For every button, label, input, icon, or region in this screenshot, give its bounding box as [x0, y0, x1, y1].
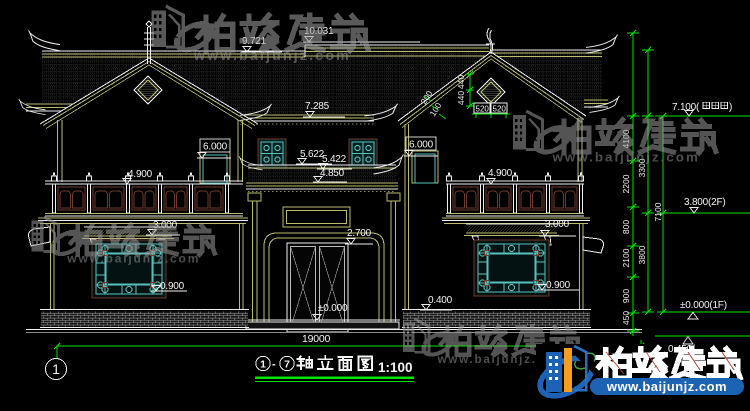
svg-text:www.baijunjz.com: www.baijunjz.com	[606, 379, 727, 394]
svg-text:1: 1	[260, 359, 266, 371]
svg-text:4.850: 4.850	[320, 168, 345, 179]
svg-text:1: 1	[52, 361, 60, 377]
svg-text:±0.000: ±0.000	[318, 303, 348, 314]
svg-text:520: 520	[493, 105, 507, 114]
svg-text:5.622: 5.622	[300, 149, 325, 160]
svg-text:7100: 7100	[653, 202, 663, 221]
svg-text:4.900: 4.900	[488, 168, 513, 179]
svg-text:800: 800	[621, 220, 631, 234]
svg-text:6.000: 6.000	[409, 140, 434, 151]
svg-text:): )	[729, 102, 732, 113]
svg-text:5.422: 5.422	[322, 154, 347, 165]
svg-text:3.000: 3.000	[545, 219, 570, 230]
svg-text:2200: 2200	[621, 174, 631, 193]
svg-text:3.800(2F): 3.800(2F)	[684, 197, 726, 208]
svg-text:7: 7	[284, 359, 290, 371]
svg-text:0.400: 0.400	[428, 295, 453, 306]
svg-text:1:100: 1:100	[378, 360, 413, 375]
svg-text:0.900: 0.900	[546, 280, 571, 291]
svg-text:3800: 3800	[637, 245, 647, 264]
svg-text:-: -	[272, 359, 276, 371]
svg-text:7.100(: 7.100(	[672, 102, 700, 113]
svg-text:440: 440	[456, 91, 466, 105]
svg-text:4.900: 4.900	[128, 169, 153, 180]
svg-text:520: 520	[476, 105, 490, 114]
svg-text:440: 440	[456, 75, 466, 89]
svg-text:900: 900	[621, 289, 631, 303]
svg-text:0.900: 0.900	[160, 281, 185, 292]
svg-text:2.700: 2.700	[347, 228, 372, 239]
svg-text:19000: 19000	[302, 333, 331, 345]
svg-text:7.285: 7.285	[305, 101, 330, 112]
svg-text:2100: 2100	[621, 248, 631, 267]
svg-text:6.000: 6.000	[203, 142, 228, 153]
svg-text:±0.000(1F): ±0.000(1F)	[680, 300, 727, 311]
svg-text:450: 450	[621, 311, 631, 325]
